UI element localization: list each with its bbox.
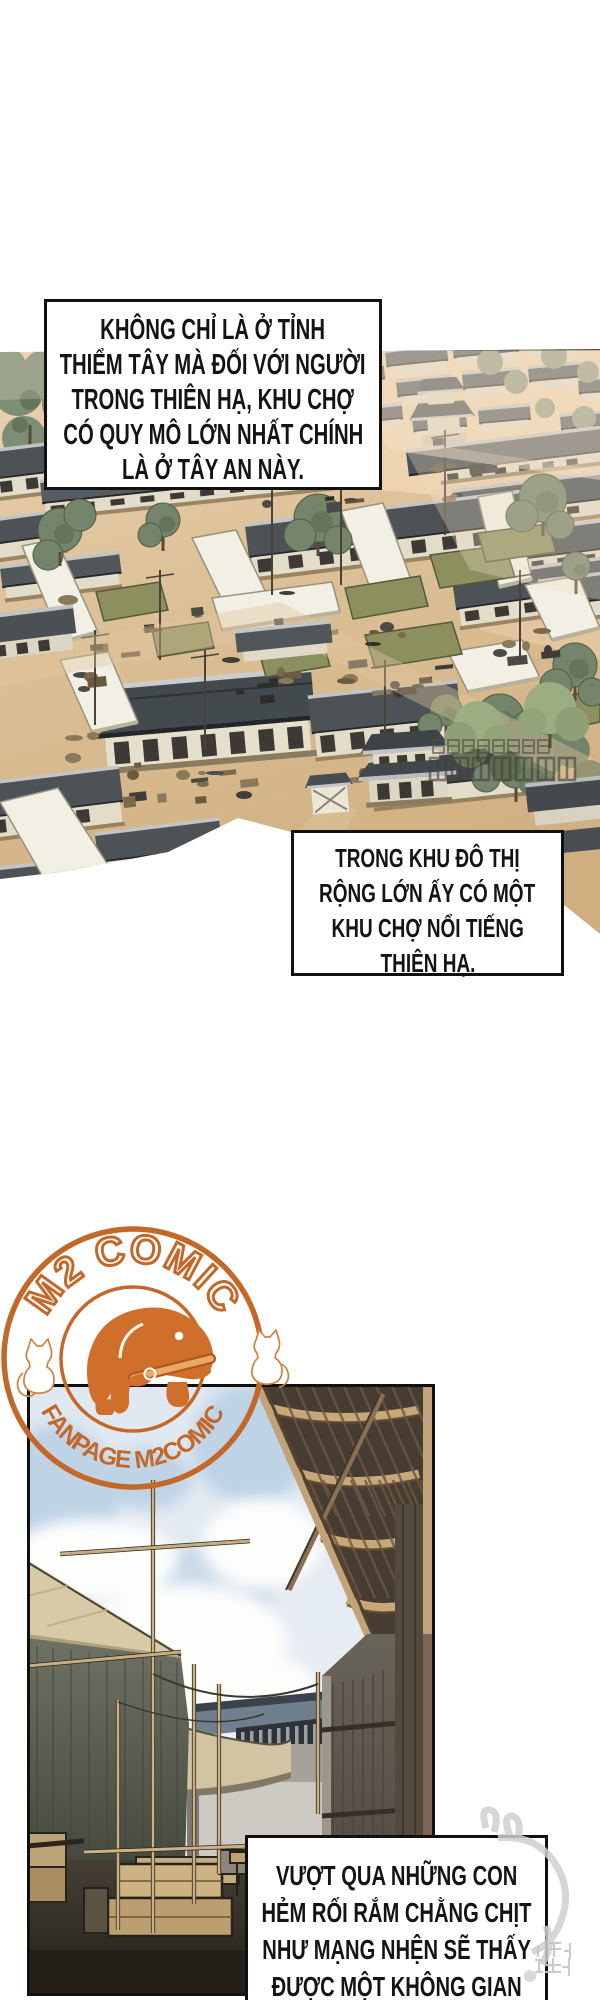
- svg-text:FANPAGE M2COMIC: FANPAGE M2COMIC: [35, 1400, 230, 1474]
- svg-text:M2 COMIC: M2 COMIC: [17, 1227, 249, 1322]
